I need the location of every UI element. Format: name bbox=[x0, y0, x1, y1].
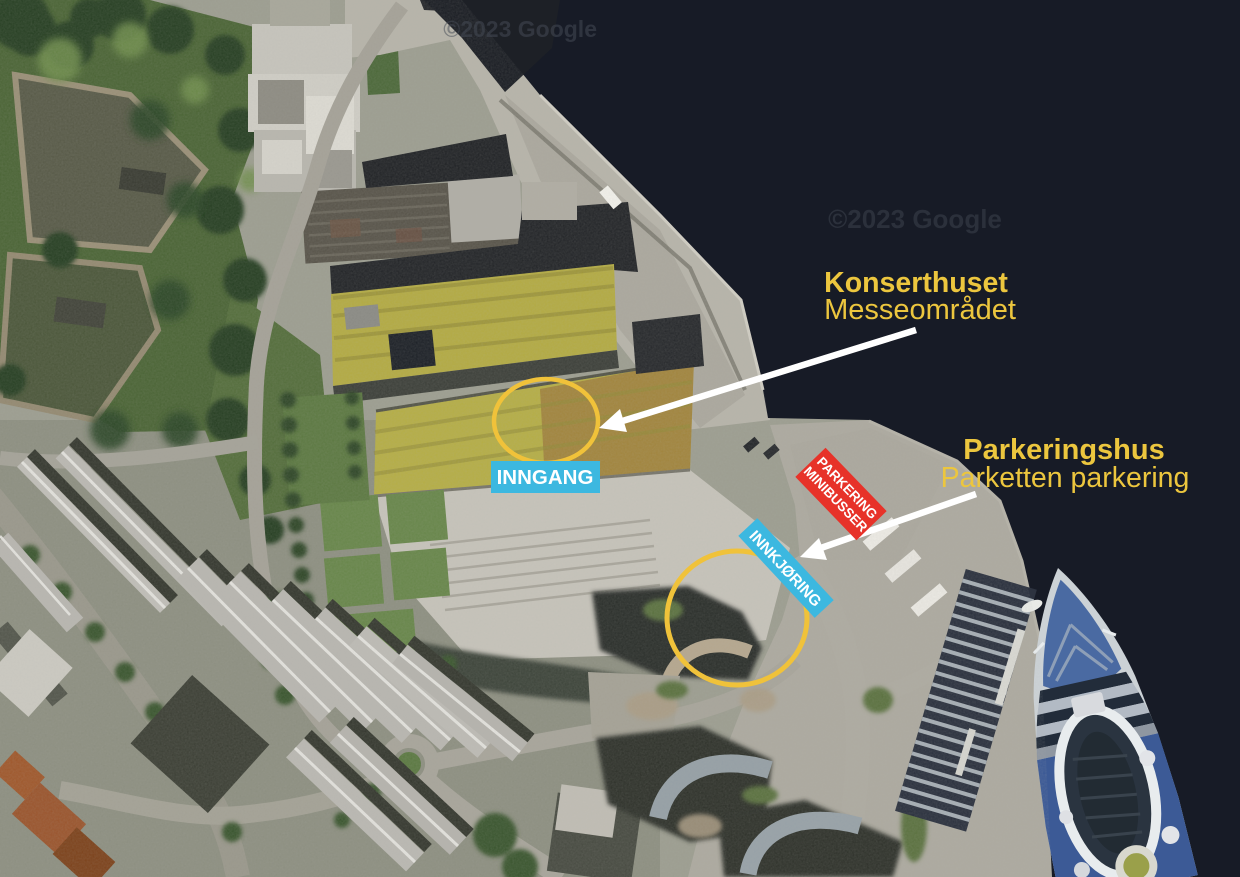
svg-text:©2023 Google: ©2023 Google bbox=[828, 204, 1002, 234]
svg-text:Parketten parkering: Parketten parkering bbox=[941, 462, 1190, 494]
svg-text:Messeområdet: Messeområdet bbox=[824, 294, 1016, 326]
svg-text:INNGANG: INNGANG bbox=[497, 466, 594, 489]
svg-text:©2023 Google: ©2023 Google bbox=[443, 16, 597, 42]
